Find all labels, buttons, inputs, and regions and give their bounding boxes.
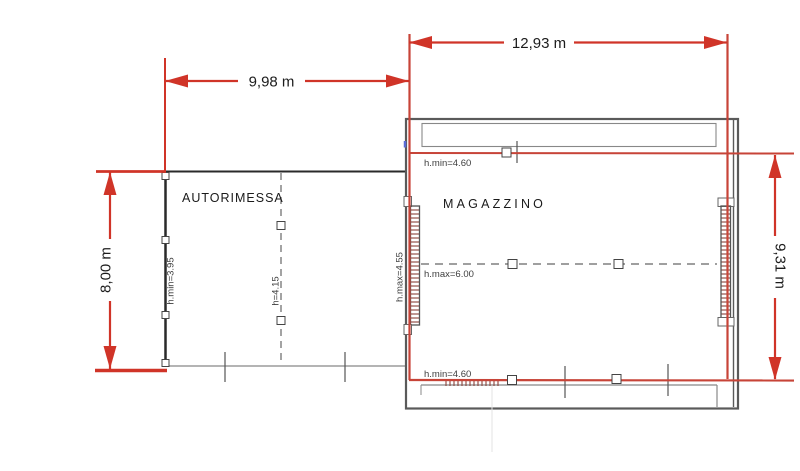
autorimessa-hmin-label: h.min=3.95 xyxy=(166,257,177,304)
grip-handle[interactable] xyxy=(162,173,169,180)
magazzino-top-band xyxy=(422,124,716,147)
outline-bottom xyxy=(409,380,794,381)
grip-handle[interactable] xyxy=(508,260,517,269)
arrowhead-left xyxy=(409,36,432,49)
grip-handle[interactable] xyxy=(162,237,169,244)
autorimessa-label: AUTORIMESSA xyxy=(182,191,284,205)
arrowhead-down xyxy=(104,346,117,369)
magazzino-hmax-left-label: h.max=4.55 xyxy=(395,252,406,302)
grip-handle[interactable] xyxy=(502,148,511,157)
magazzino-hmax-center-label: h.max=6.00 xyxy=(424,269,474,280)
dimension-magazzino-height: 9,31 m xyxy=(765,155,789,380)
arrowhead-right xyxy=(386,75,409,88)
arrowhead-right xyxy=(704,36,727,49)
autorimessa-room: AUTORIMESSA h.min=3.95 h=4.15 xyxy=(162,171,407,383)
arrowhead-up xyxy=(104,172,117,195)
grip-handle[interactable] xyxy=(277,222,285,230)
dimension-value: 8,00 m xyxy=(98,247,115,293)
arrowhead-up xyxy=(769,155,782,178)
right-wall-hatch xyxy=(721,206,731,318)
left-wall-hatch xyxy=(411,206,420,325)
magazzino-room: MAGAZZINO h.min=4.60 h.max=6.00 h.min=4.… xyxy=(395,119,739,452)
floor-plan-canvas: AUTORIMESSA h.min=3.95 h=4.15 MAGAZZINO … xyxy=(0,0,800,471)
grip-handle[interactable] xyxy=(612,375,621,384)
grip-handle[interactable] xyxy=(162,312,169,319)
magazzino-hmin-top-label: h.min=4.60 xyxy=(424,158,471,169)
grip-handle[interactable] xyxy=(508,376,517,385)
magazzino-hmin-bottom-label: h.min=4.60 xyxy=(424,369,471,380)
right-wall-step-top xyxy=(718,198,734,207)
dimension-value: 9,98 m xyxy=(249,74,295,91)
floor-plan-drawing: AUTORIMESSA h.min=3.95 h=4.15 MAGAZZINO … xyxy=(0,0,800,471)
dimension-magazzino-width: 12,93 m xyxy=(409,33,727,53)
arrowhead-left xyxy=(165,75,188,88)
grip-handle[interactable] xyxy=(277,317,285,325)
right-wall-step-bottom xyxy=(718,318,734,327)
dimension-autorimessa-height: 8,00 m xyxy=(95,172,167,371)
dimension-value: 12,93 m xyxy=(512,35,566,52)
dimension-autorimessa-width: 9,98 m xyxy=(165,58,409,171)
dimensions: 9,98 m 12,93 m 8,00 m 9,31 m xyxy=(95,33,789,381)
grip-handle[interactable] xyxy=(614,260,623,269)
grip-handle[interactable] xyxy=(162,360,169,367)
magazzino-label: MAGAZZINO xyxy=(443,197,546,211)
autorimessa-hcenter-label: h=4.15 xyxy=(271,276,282,305)
dimension-value: 9,31 m xyxy=(772,243,789,289)
arrowhead-down xyxy=(769,357,782,380)
outline-top xyxy=(409,153,794,154)
